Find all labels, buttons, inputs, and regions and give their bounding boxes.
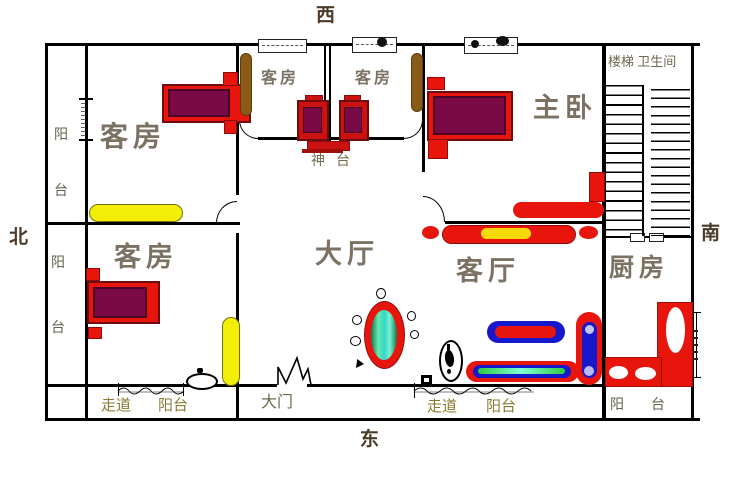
rug <box>222 317 240 386</box>
stairs-edge <box>642 85 644 236</box>
wardrobe <box>240 53 252 116</box>
compass-east: 东 <box>360 430 379 449</box>
corridor-label-center: 走道 <box>427 400 457 415</box>
wall-midrooms-bottom <box>258 137 404 140</box>
scribble-blob <box>377 37 387 47</box>
vase-dot <box>447 369 451 374</box>
compass-south: 南 <box>701 224 720 243</box>
wall-left-divider <box>45 222 240 225</box>
room-label-guest-mid-left: 客房 <box>261 71 299 87</box>
sofa-blue-cushion <box>495 326 556 338</box>
mattress <box>168 89 230 117</box>
scribble-mark <box>584 366 594 376</box>
sink <box>666 307 685 353</box>
nightstand <box>224 120 237 134</box>
balcony-label-top-left: 阳 台 <box>53 124 69 200</box>
door-stopper <box>421 375 432 385</box>
balcony-label-bottom-1: 阳台 <box>158 399 188 414</box>
wall-outer-left <box>45 43 48 421</box>
balcony-char: 阳 <box>51 252 65 272</box>
bubble <box>407 311 416 321</box>
wall-master-bottom <box>445 221 603 224</box>
sofa-cushion <box>481 228 531 239</box>
door-arc-guest-mid-right <box>404 120 423 139</box>
stairs-flight-right <box>651 89 690 236</box>
bubble <box>376 288 386 299</box>
main-door-label: 大门 <box>261 395 293 411</box>
balcony-char: 台 <box>651 394 665 414</box>
scribble-mark <box>585 325 594 334</box>
chair-cushion <box>344 107 362 133</box>
balcony-char: 台 <box>54 180 68 200</box>
room-label-guest-bottom-left: 客房 <box>114 244 178 271</box>
room-label-stairs-bathroom: 楼梯 卫生间 <box>608 55 676 68</box>
stool <box>579 226 598 239</box>
burner <box>609 366 628 379</box>
nightstand <box>88 327 102 339</box>
dimension-tick <box>692 312 701 313</box>
pot-knob <box>197 368 203 373</box>
door-arc-guest-top-left <box>216 201 237 223</box>
window-annotation-2 <box>352 37 397 53</box>
room-label-guest-mid-right: 客房 <box>355 71 393 87</box>
bubble <box>410 330 419 339</box>
room-label-hall: 大厅 <box>315 241 379 268</box>
mattress <box>93 287 147 318</box>
balcony-label-bottom-2: 阳台 <box>486 400 516 415</box>
nightstand <box>86 268 100 281</box>
window-tick <box>79 98 93 100</box>
dimension-annotation <box>414 385 534 398</box>
rug <box>89 204 183 222</box>
sofa-long-stripe <box>478 368 565 374</box>
scribble-blob <box>471 40 479 48</box>
wardrobe <box>411 53 423 112</box>
dimension-scribble <box>693 330 698 360</box>
dimension-tick <box>692 377 701 378</box>
window-annotation-1 <box>258 39 307 53</box>
balcony-char: 台 <box>51 317 65 337</box>
door-arc-master <box>423 196 445 222</box>
chair-cushion <box>303 107 322 133</box>
compass-north: 北 <box>9 228 28 247</box>
burner <box>635 367 656 380</box>
altar-base <box>302 149 343 153</box>
bench-sofa <box>513 202 604 218</box>
nightstand <box>223 72 238 86</box>
vase-neck <box>447 344 450 351</box>
floor-plan: 西 北 南 东 阳 台 阳 台 客房 <box>0 0 732 481</box>
room-label-guest-top-left: 客房 <box>100 124 166 152</box>
nightstand <box>427 77 445 90</box>
kitchen-balcony-label: 阳 台 <box>610 396 665 412</box>
balcony-label-bottom-left: 阳 台 <box>50 252 66 337</box>
window-tick <box>79 139 93 141</box>
room-label-living: 客厅 <box>456 258 520 285</box>
pot <box>186 373 218 390</box>
main-door-zigzag <box>270 353 315 386</box>
nightstand <box>428 139 448 159</box>
window-scribble <box>81 103 86 138</box>
tv-cabinet <box>589 172 605 202</box>
mattress <box>433 96 506 135</box>
room-label-master: 主卧 <box>533 95 597 122</box>
stairs-flight-left <box>606 85 643 236</box>
wall-outer-bottom <box>45 418 700 421</box>
stool <box>422 226 439 239</box>
arrow-mark <box>356 359 364 368</box>
wall-midrooms-double-b <box>329 43 331 143</box>
corridor-label-left: 走道 <box>101 399 131 414</box>
balcony-char: 阳 <box>610 394 624 414</box>
bubble <box>352 315 362 325</box>
bubble <box>350 336 361 346</box>
altar-label: 神台 <box>311 155 361 169</box>
fish-tank-water <box>371 310 397 360</box>
dimension-annotation <box>118 384 184 398</box>
compass-west: 西 <box>316 6 335 25</box>
balcony-char: 阳 <box>54 124 68 144</box>
room-label-kitchen: 厨房 <box>609 256 669 281</box>
scribble-blob <box>496 36 509 46</box>
